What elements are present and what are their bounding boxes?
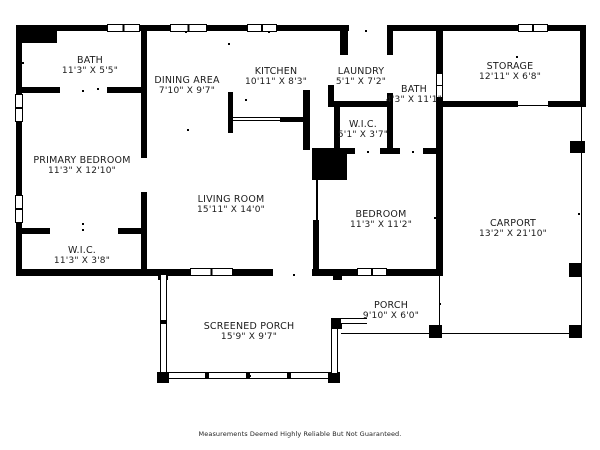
- wall-segment: [233, 269, 273, 276]
- room-name: LIVING ROOM: [197, 194, 265, 205]
- chimney-block: [312, 148, 347, 180]
- room-name: W.I.C.: [338, 119, 388, 130]
- window: [15, 94, 23, 122]
- wall-segment: [313, 220, 319, 269]
- room-label-laundry: LAUNDRY 5'1" X 7'2": [336, 66, 386, 88]
- room-name: PRIMARY BEDROOM: [33, 155, 130, 166]
- door-tick: [439, 303, 441, 305]
- room-dims: 11'3" X 5'5": [62, 66, 118, 77]
- screen-divider: [205, 372, 209, 379]
- carport-post: [570, 141, 585, 153]
- wall-segment: [423, 148, 443, 154]
- window: [357, 268, 387, 276]
- door-tick: [187, 129, 189, 131]
- wall-segment: [228, 92, 233, 133]
- porch-post: [157, 372, 169, 383]
- wall-segment: [580, 25, 586, 107]
- wall-segment: [387, 25, 518, 31]
- room-label-storage: STORAGE 12'11" X 6'8": [479, 61, 541, 83]
- room-label-living-room: LIVING ROOM 15'11" X 14'0": [197, 194, 265, 216]
- room-label-kitchen: KITCHEN 10'11" X 8'3": [245, 66, 307, 88]
- fixture-block: [16, 25, 57, 43]
- door-tick: [245, 99, 247, 101]
- room-name: BEDROOM: [350, 209, 412, 220]
- door-tick: [268, 31, 270, 33]
- window: [518, 24, 548, 32]
- room-label-dining-area: DINING AREA 7'10" X 9'7": [154, 75, 219, 97]
- room-label-screened-porch: SCREENED PORCH 15'9" X 9'7": [204, 321, 295, 343]
- wall-segment: [333, 275, 342, 280]
- wall-segment: [141, 192, 147, 269]
- room-dims: 12'11" X 6'8": [479, 72, 541, 83]
- door-tick: [82, 90, 84, 92]
- door-tick: [365, 30, 367, 32]
- wall-segment: [380, 148, 400, 154]
- room-label-wic-left: W.I.C. 11'3" X 3'8": [54, 245, 110, 267]
- room-dims: 7'10" X 9'7": [154, 86, 219, 97]
- window: [170, 24, 207, 32]
- screen-wall: [160, 275, 167, 377]
- wall-segment: [334, 101, 387, 107]
- opening-line: [518, 105, 548, 106]
- room-label-bedroom: BEDROOM 11'3" X 11'2": [350, 209, 412, 231]
- door-tick: [97, 88, 99, 90]
- door-tick: [228, 43, 230, 45]
- screen-divider: [287, 372, 291, 379]
- room-dims: 4'3" X 11'1": [386, 95, 442, 106]
- room-name: BATH: [62, 55, 118, 66]
- room-name: STORAGE: [479, 61, 541, 72]
- wall-segment: [387, 31, 393, 55]
- wall-segment: [277, 25, 349, 31]
- room-dims: 5'1" X 3'7": [338, 130, 388, 141]
- carport-edge-line: [341, 333, 581, 334]
- room-label-wic-middle: W.I.C. 5'1" X 3'7": [338, 119, 388, 141]
- room-label-porch: PORCH 9'10" X 6'0": [363, 300, 419, 322]
- wall-segment: [303, 90, 310, 150]
- door-tick: [249, 375, 251, 377]
- room-dims: 5'1" X 7'2": [336, 77, 386, 88]
- disclaimer-text: Measurements Deemed Highly Reliable But …: [199, 430, 402, 438]
- room-name: PORCH: [363, 300, 419, 311]
- window: [107, 24, 140, 32]
- porch-post: [328, 372, 340, 383]
- room-dims: 11'3" X 11'2": [350, 220, 412, 231]
- wall-segment: [387, 269, 443, 276]
- door-tick: [293, 274, 295, 276]
- carport-post: [569, 325, 582, 338]
- room-dims: 15'11" X 14'0": [197, 205, 265, 216]
- window: [190, 268, 233, 276]
- carport-post: [429, 325, 442, 338]
- room-dims: 11'3" X 3'8": [54, 256, 110, 267]
- wall-segment: [16, 122, 22, 195]
- room-label-bath-middle: BATH 4'3" X 11'1": [386, 84, 442, 106]
- screen-wall: [331, 329, 338, 373]
- wall-segment: [107, 87, 141, 93]
- wall-segment: [141, 31, 147, 158]
- door-tick: [578, 213, 580, 215]
- room-name: SCREENED PORCH: [204, 321, 295, 332]
- room-label-bath-left: BATH 11'3" X 5'5": [62, 55, 118, 77]
- room-name: DINING AREA: [154, 75, 219, 86]
- room-dims: 10'11" X 8'3": [245, 77, 307, 88]
- room-label-primary-bedroom: PRIMARY BEDROOM 11'3" X 12'10": [33, 155, 130, 177]
- opening-line: [316, 180, 318, 220]
- room-dims: 15'9" X 9'7": [204, 332, 295, 343]
- carport-post: [569, 263, 582, 277]
- door-tick: [185, 31, 187, 33]
- room-name: LAUNDRY: [336, 66, 386, 77]
- wall-segment: [118, 228, 141, 234]
- door-tick: [516, 56, 518, 58]
- wall-segment: [340, 31, 348, 55]
- wall-segment: [280, 117, 303, 122]
- room-name: W.I.C.: [54, 245, 110, 256]
- carport-edge-line: [439, 276, 440, 326]
- wall-segment: [207, 25, 247, 31]
- wall-segment: [22, 87, 60, 93]
- screen-divider: [160, 320, 167, 324]
- room-name: KITCHEN: [245, 66, 307, 77]
- counter-line: [233, 117, 280, 121]
- floor-plan: BATH 11'3" X 5'5" DINING AREA 7'10" X 9'…: [0, 0, 600, 450]
- window: [247, 24, 277, 32]
- room-dims: 13'2" X 21'10": [479, 229, 547, 240]
- door-tick: [82, 229, 84, 231]
- door-tick: [434, 217, 436, 219]
- door-tick: [22, 62, 24, 64]
- door-tick: [367, 151, 369, 153]
- room-dims: 9'10" X 6'0": [363, 311, 419, 322]
- wall-segment: [18, 228, 50, 234]
- window: [15, 195, 23, 223]
- room-name: BATH: [386, 84, 442, 95]
- wall-segment: [436, 98, 443, 275]
- room-dims: 11'3" X 12'10": [33, 166, 130, 177]
- door-tick: [144, 62, 146, 64]
- room-name: CARPORT: [479, 218, 547, 229]
- wall-segment: [436, 25, 443, 73]
- wall-segment: [436, 101, 518, 107]
- room-label-carport: CARPORT 13'2" X 21'10": [479, 218, 547, 240]
- door-tick: [82, 223, 84, 225]
- door-tick: [412, 151, 414, 153]
